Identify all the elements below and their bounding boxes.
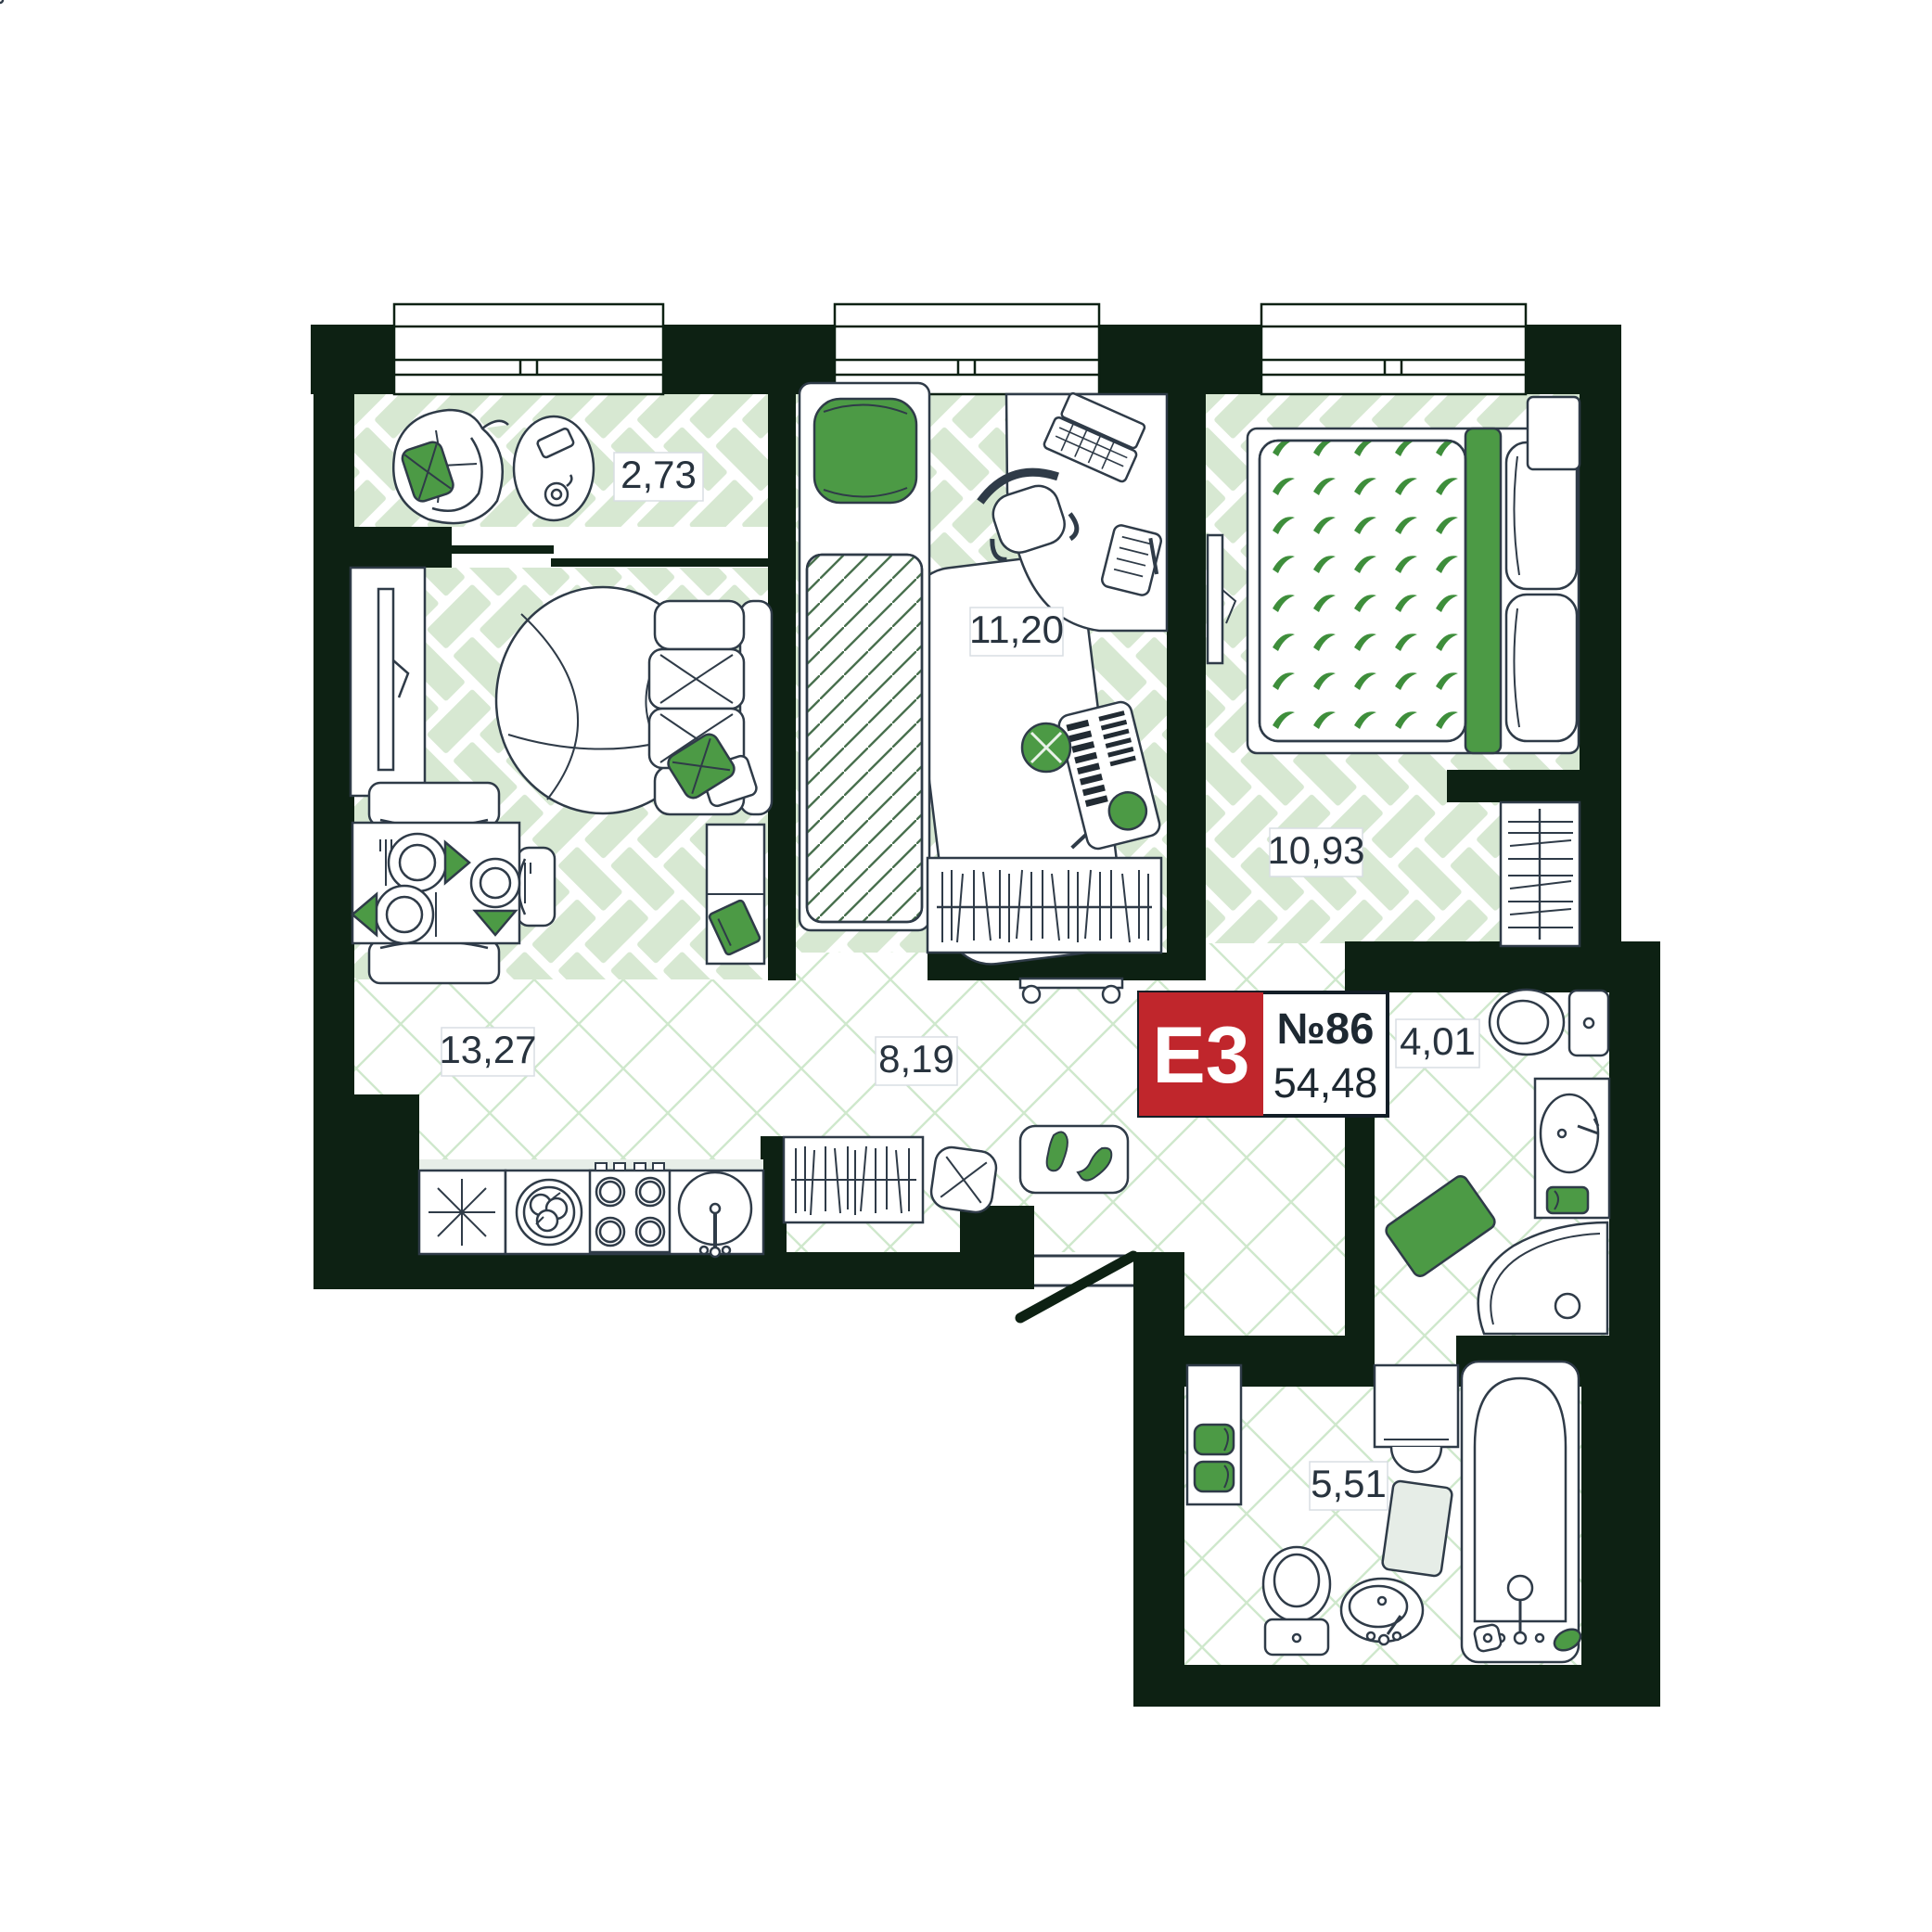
- label-bathroom: 4,01: [1396, 1019, 1479, 1068]
- windows: [394, 304, 1526, 394]
- bed-runner: [1465, 429, 1501, 753]
- kids-stool: [1022, 723, 1070, 772]
- kitchen-living-area: 13,27: [439, 1028, 536, 1071]
- unit-badge: E3 №86 54,48: [1139, 992, 1388, 1116]
- bathroom-2-area: 5,51: [1311, 1462, 1387, 1505]
- balcony-area: 2,73: [621, 453, 697, 496]
- wall-bedroom-bottom: [1345, 941, 1609, 992]
- kids-room-area: 11,20: [969, 608, 1064, 651]
- towel-shelf: [1187, 1365, 1241, 1504]
- sofa: [649, 601, 772, 814]
- unit-number: №86: [1277, 1004, 1375, 1053]
- stove: [590, 1163, 670, 1252]
- wall-entry-step: [960, 1206, 1034, 1289]
- towel-holder: [1547, 1187, 1588, 1213]
- wall-bottom-bath: [1133, 1665, 1660, 1707]
- wall-balcony-bottom: [313, 527, 452, 568]
- shoe-mat: [1020, 1126, 1128, 1193]
- unit-total-area: 54,48: [1273, 1059, 1378, 1107]
- nightstand: [1528, 397, 1580, 469]
- fruit-bowl: [517, 1180, 582, 1245]
- label-bedroom: 10,93: [1267, 828, 1364, 876]
- balcony-side-table: [514, 416, 594, 520]
- bedroom-wardrobe: [1501, 802, 1580, 946]
- hall-pouf: [929, 1145, 999, 1215]
- double-bed: [1247, 429, 1579, 753]
- toilet: [1490, 990, 1608, 1056]
- window-bedroom: [1261, 304, 1526, 394]
- fridge-icon: [429, 1179, 495, 1246]
- entry-door: [1020, 1256, 1133, 1318]
- toilet-2: [1263, 1547, 1330, 1655]
- unit-type: E3: [1152, 1011, 1249, 1100]
- window-kids-room: [835, 304, 1099, 394]
- bedroom-area: 10,93: [1267, 828, 1364, 872]
- window-balcony: [394, 304, 663, 394]
- wall-right-mid: [1609, 941, 1660, 1340]
- balcony-door: [452, 545, 770, 567]
- wall-right-top: [1580, 325, 1621, 955]
- bathtub: [1462, 1362, 1584, 1662]
- dining-chair-top: [369, 783, 499, 825]
- label-bathroom-2: 5,51: [1310, 1462, 1388, 1510]
- label-kids-room: 11,20: [969, 608, 1064, 656]
- wall-niche-top: [1447, 770, 1621, 802]
- wall-right-low: [1581, 1336, 1660, 1707]
- tv-console: [707, 825, 764, 964]
- dining-chair-right: [518, 848, 555, 926]
- hanging-chair: [393, 410, 508, 523]
- hall-wardrobe: [784, 1137, 923, 1222]
- kitchen: [419, 1159, 763, 1257]
- wall-left: [313, 325, 354, 1094]
- kids-bed: [800, 383, 929, 930]
- label-balcony: 2,73: [614, 453, 703, 501]
- bathroom-area: 4,01: [1400, 1019, 1476, 1063]
- wall-bottom: [313, 1252, 1034, 1289]
- label-kitchen-living: 13,27: [439, 1028, 536, 1076]
- hallway-area: 8,19: [878, 1037, 954, 1081]
- wall-corridor-left: [1133, 1252, 1184, 1707]
- tv-sideboard: [351, 568, 425, 796]
- kids-pillow: [814, 399, 916, 503]
- label-hallway: 8,19: [876, 1037, 957, 1085]
- bath-mat-2: [1382, 1480, 1453, 1577]
- wall-kids-bedroom: [1167, 325, 1206, 980]
- floor-plan: 2,73 11,20 10,93 13,27 8,19 4,01 5,51: [0, 0, 1932, 1932]
